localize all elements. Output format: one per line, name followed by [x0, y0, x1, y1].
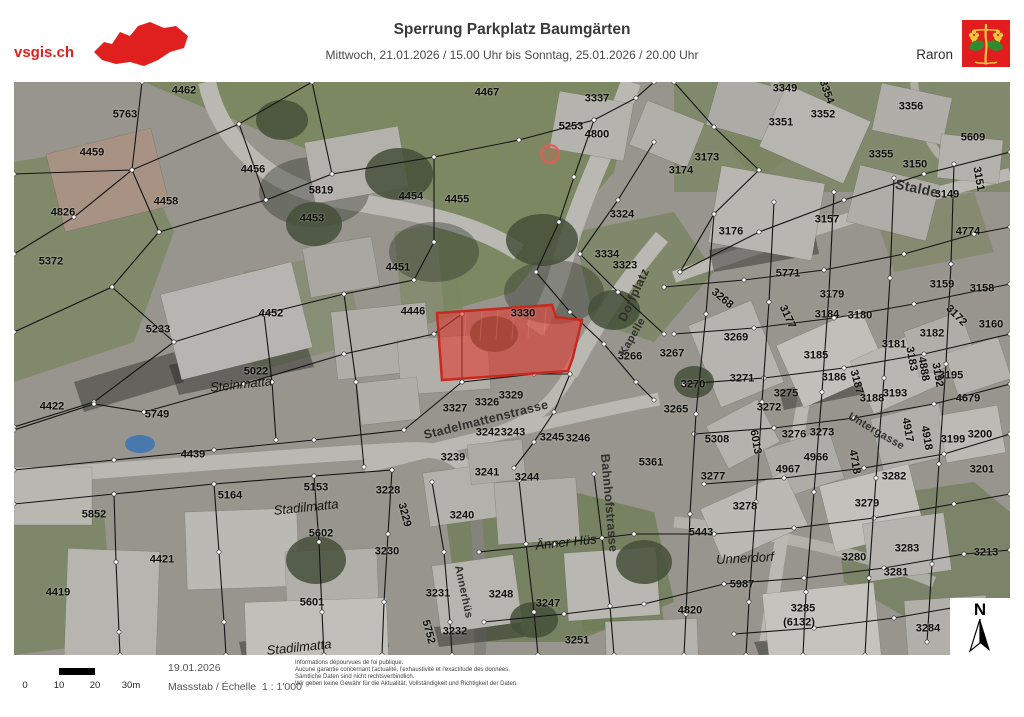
page-title: Sperrung Parkplatz Baumgärten	[394, 21, 631, 39]
scale-tick: 0	[22, 680, 27, 691]
print-page: vsgis.ch Sperrung Parkplatz Baumgärten M…	[0, 0, 1024, 717]
swimming-pool	[125, 435, 155, 453]
disclaimer-line: Sämtliche Daten sind nicht rechtsverbind…	[295, 674, 518, 681]
north-arrow: N	[950, 598, 1010, 655]
disclaimer-line: Aucune garantie concernant l'actualité, …	[295, 667, 518, 674]
scale-tick: 10	[54, 680, 65, 691]
scale-bar	[59, 668, 95, 675]
north-label: N	[974, 600, 986, 619]
closure-highlight-polygon	[437, 305, 582, 380]
disclaimer-line: Informations dépourvues de foi publique.	[295, 660, 518, 667]
disclaimer-line: Wir geben keine Gewähr für die Aktualitä…	[295, 681, 518, 688]
north-needle-icon	[980, 619, 990, 651]
map-canvas: 4462576344594456581944584826445353724467…	[14, 82, 1010, 655]
municipality-name: Raron	[916, 47, 953, 62]
print-date: 19.01.2026	[168, 662, 221, 674]
scale-tick: 30m	[122, 680, 140, 691]
red-circle-annotation	[541, 145, 559, 163]
page-subtitle: Mittwoch, 21.01.2026 / 15.00 Uhr bis Son…	[326, 48, 699, 62]
vsgis-logo-text: vsgis.ch	[14, 44, 74, 61]
scale-label: Massstab / Échelle	[168, 681, 256, 693]
municipality-block: Raron	[916, 20, 1010, 67]
valais-canton-logo-icon	[92, 22, 192, 70]
north-needle-icon	[970, 619, 980, 651]
disclaimer: Informations dépourvues de foi publique.…	[295, 660, 518, 688]
scale-text: Massstab / Échelle 1 : 1'000	[168, 681, 302, 693]
raron-coat-of-arms-icon	[962, 20, 1010, 67]
aerial-photo	[14, 82, 1010, 655]
scale-tick: 20	[90, 680, 101, 691]
